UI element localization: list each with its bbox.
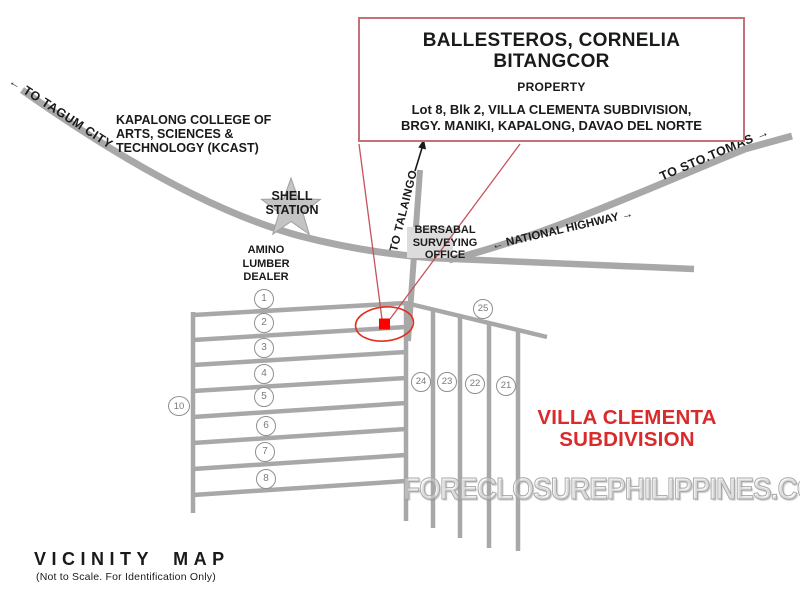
grid-line [193,378,406,391]
grid-line [193,481,406,495]
watermark-text: FORECLOSUREPHILIPPINES.COM [403,471,800,507]
lot-number-marker: 24 [411,372,431,392]
grid-line [193,429,406,443]
kcast-label: KAPALONG COLLEGE OF ARTS, SCIENCES & TEC… [116,113,271,155]
lot-number-marker: 6 [256,416,276,436]
grid-line [193,327,406,340]
property-callout-box: BALLESTEROS, CORNELIA BITANGCOR PROPERTY… [358,17,745,142]
lot-number-marker: 8 [256,469,276,489]
lot-number-marker: 2 [254,313,274,333]
property-marker [379,319,390,330]
grid-line [193,455,406,469]
lot-number-marker: 1 [254,289,274,309]
grid-line [193,352,406,365]
vicinity-map: BALLESTEROS, CORNELIA BITANGCOR PROPERTY… [0,0,800,600]
property-owner-name: BALLESTEROS, CORNELIA BITANGCOR [360,30,743,72]
lot-number-marker: 10 [168,396,190,416]
lot-number-marker: 25 [473,299,493,319]
lot-number-marker: 3 [254,338,274,358]
callout-leader-left [359,144,382,319]
bersabal-office-label: BERSABAL SURVEYING OFFICE [408,224,482,262]
property-label: PROPERTY [360,80,743,94]
shell-station-label: SHELL STATION [248,189,336,217]
lot-number-marker: 22 [465,374,485,394]
amino-lumber-label: AMINO LUMBER DEALER [227,244,305,285]
lot-number-marker: 4 [254,364,274,384]
lot-number-marker: 23 [437,372,457,392]
property-address: Lot 8, Blk 2, VILLA CLEMENTA SUBDIVISION… [360,102,743,134]
lot-number-marker: 5 [254,387,274,407]
subdivision-name: VILLA CLEMENTA SUBDIVISION [518,407,736,451]
map-note: (Not to Scale. For Identification Only) [36,571,216,583]
lot-number-marker: 7 [255,442,275,462]
map-title: VICINITY MAP [34,549,230,570]
lot-number-marker: 21 [496,376,516,396]
grid-line [193,403,406,417]
